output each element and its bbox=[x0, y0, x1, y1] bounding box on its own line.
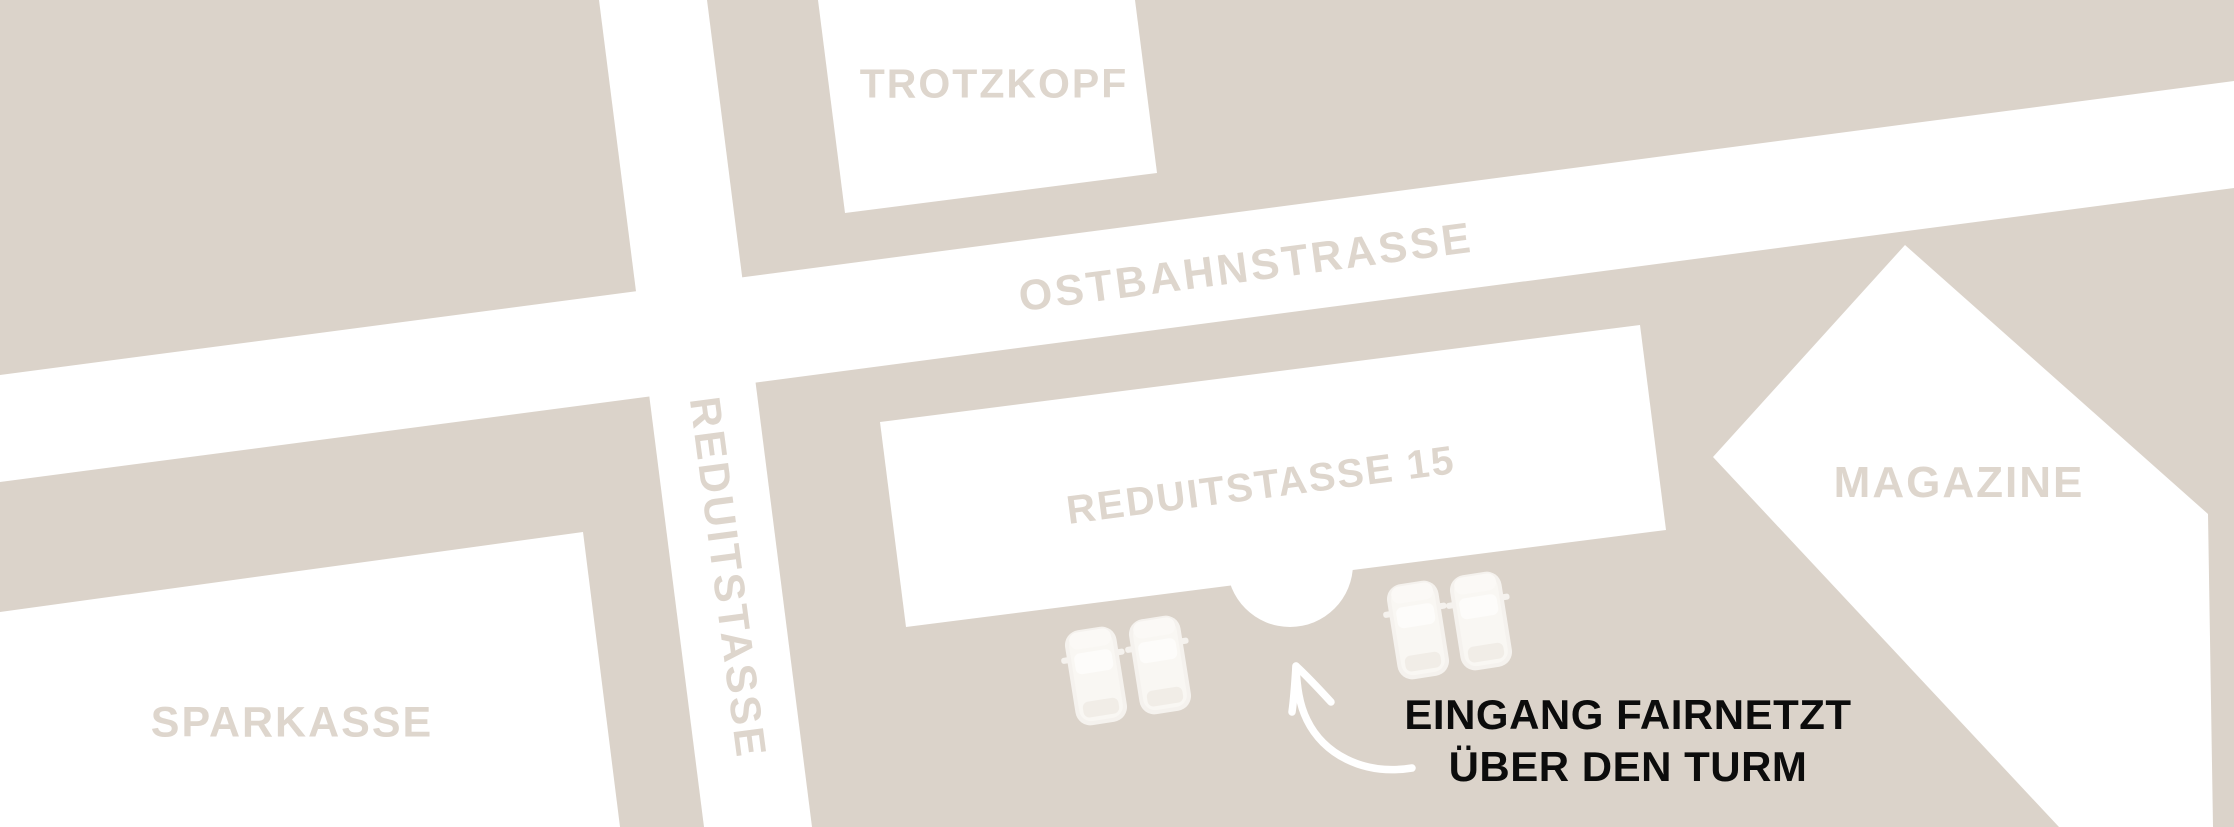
building-label-sparkasse: SPARKASSE bbox=[151, 699, 433, 748]
entrance-annotation-line1: EINGANG FAIRNETZT bbox=[1404, 689, 1851, 741]
building-label-magazine: MAGAZINE bbox=[1834, 458, 2085, 508]
site-map: TROTZKOPF OSTBAHNSTRASSE REDUITSTASSE RE… bbox=[0, 0, 2234, 827]
entrance-annotation-line2: ÜBER DEN TURM bbox=[1404, 741, 1851, 793]
entrance-annotation: EINGANG FAIRNETZT ÜBER DEN TURM bbox=[1404, 689, 1851, 793]
building-label-trotzkopf: TROTZKOPF bbox=[860, 61, 1129, 108]
tower-entrance-icon bbox=[1227, 501, 1353, 627]
